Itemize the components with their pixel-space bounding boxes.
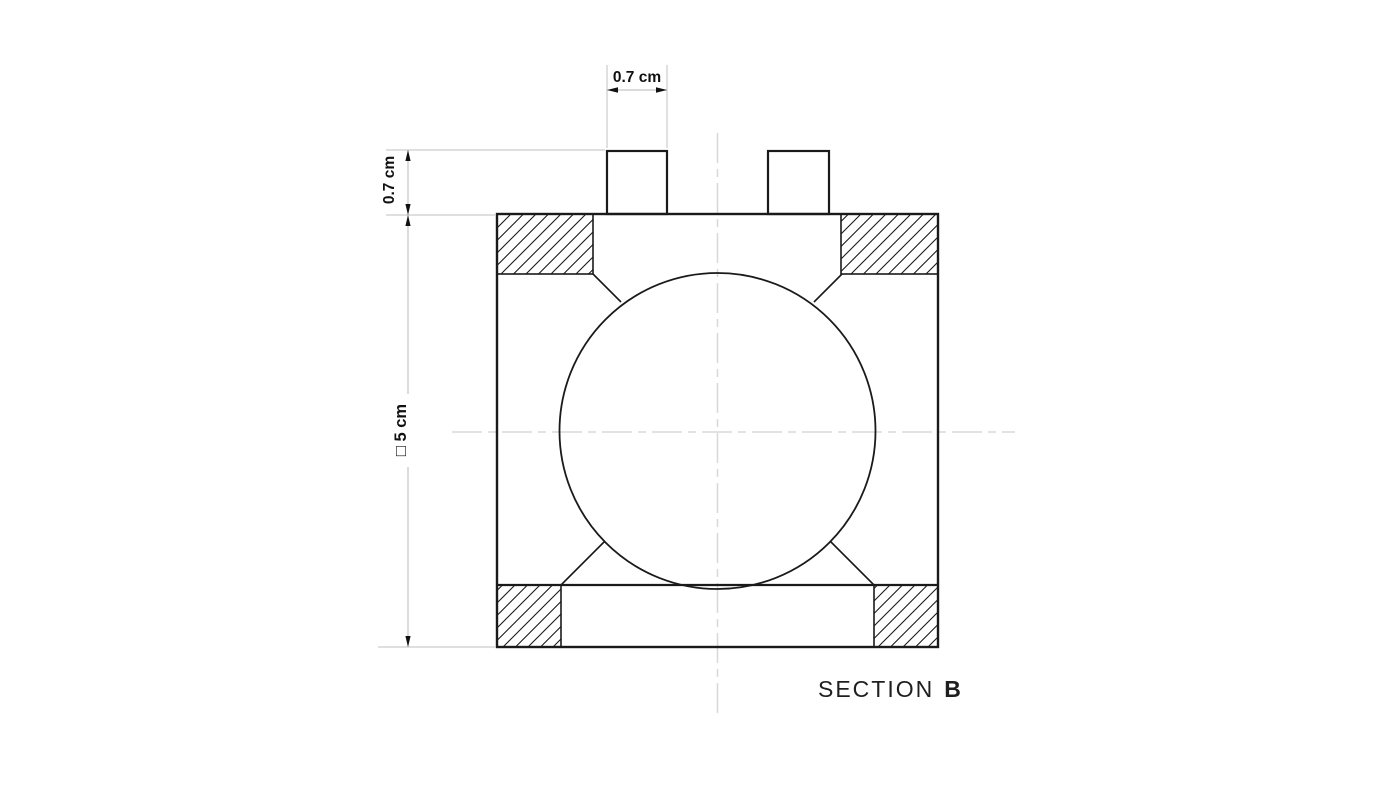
section-title-word: SECTION: [818, 676, 934, 702]
mount-tab-right: [768, 151, 829, 214]
dim-label-tab-width: 0.7 cm: [613, 69, 661, 86]
chamfer-bottom-left: [561, 541, 605, 585]
dim-label-tab-height: 0.7 cm: [381, 156, 398, 204]
hatch-bottom-right: [874, 585, 938, 647]
arrow-down-icon: [405, 204, 410, 215]
mount-tab-left: [607, 151, 667, 214]
chamfer-bottom-right: [830, 541, 874, 585]
hatch-top-left: [497, 214, 593, 274]
chamfer-top-right: [814, 274, 842, 302]
arrow-down-icon: [405, 636, 410, 647]
chamfer-top-left: [593, 274, 621, 302]
dimension-tab-height: 0.7 cm: [381, 150, 411, 394]
hatch-bottom-left: [497, 585, 561, 647]
section-title: SECTIONB: [818, 676, 963, 702]
arrow-up-icon: [405, 150, 410, 161]
dimension-tab-width: 0.7 cm: [607, 69, 667, 93]
arrow-left-icon: [607, 87, 618, 92]
arrow-up-icon: [405, 215, 410, 226]
section-title-letter: B: [944, 676, 963, 702]
dim-label-body-square: □ 5 cm: [392, 404, 410, 456]
hatch-top-right: [841, 214, 938, 274]
arrow-right-icon: [656, 87, 667, 92]
section-b-drawing: 0.7 cm 0.7 cm □ 5 cm: [0, 0, 1400, 795]
extension-lines: [378, 65, 667, 647]
technical-drawing-canvas: 0.7 cm 0.7 cm □ 5 cm: [0, 0, 1400, 795]
